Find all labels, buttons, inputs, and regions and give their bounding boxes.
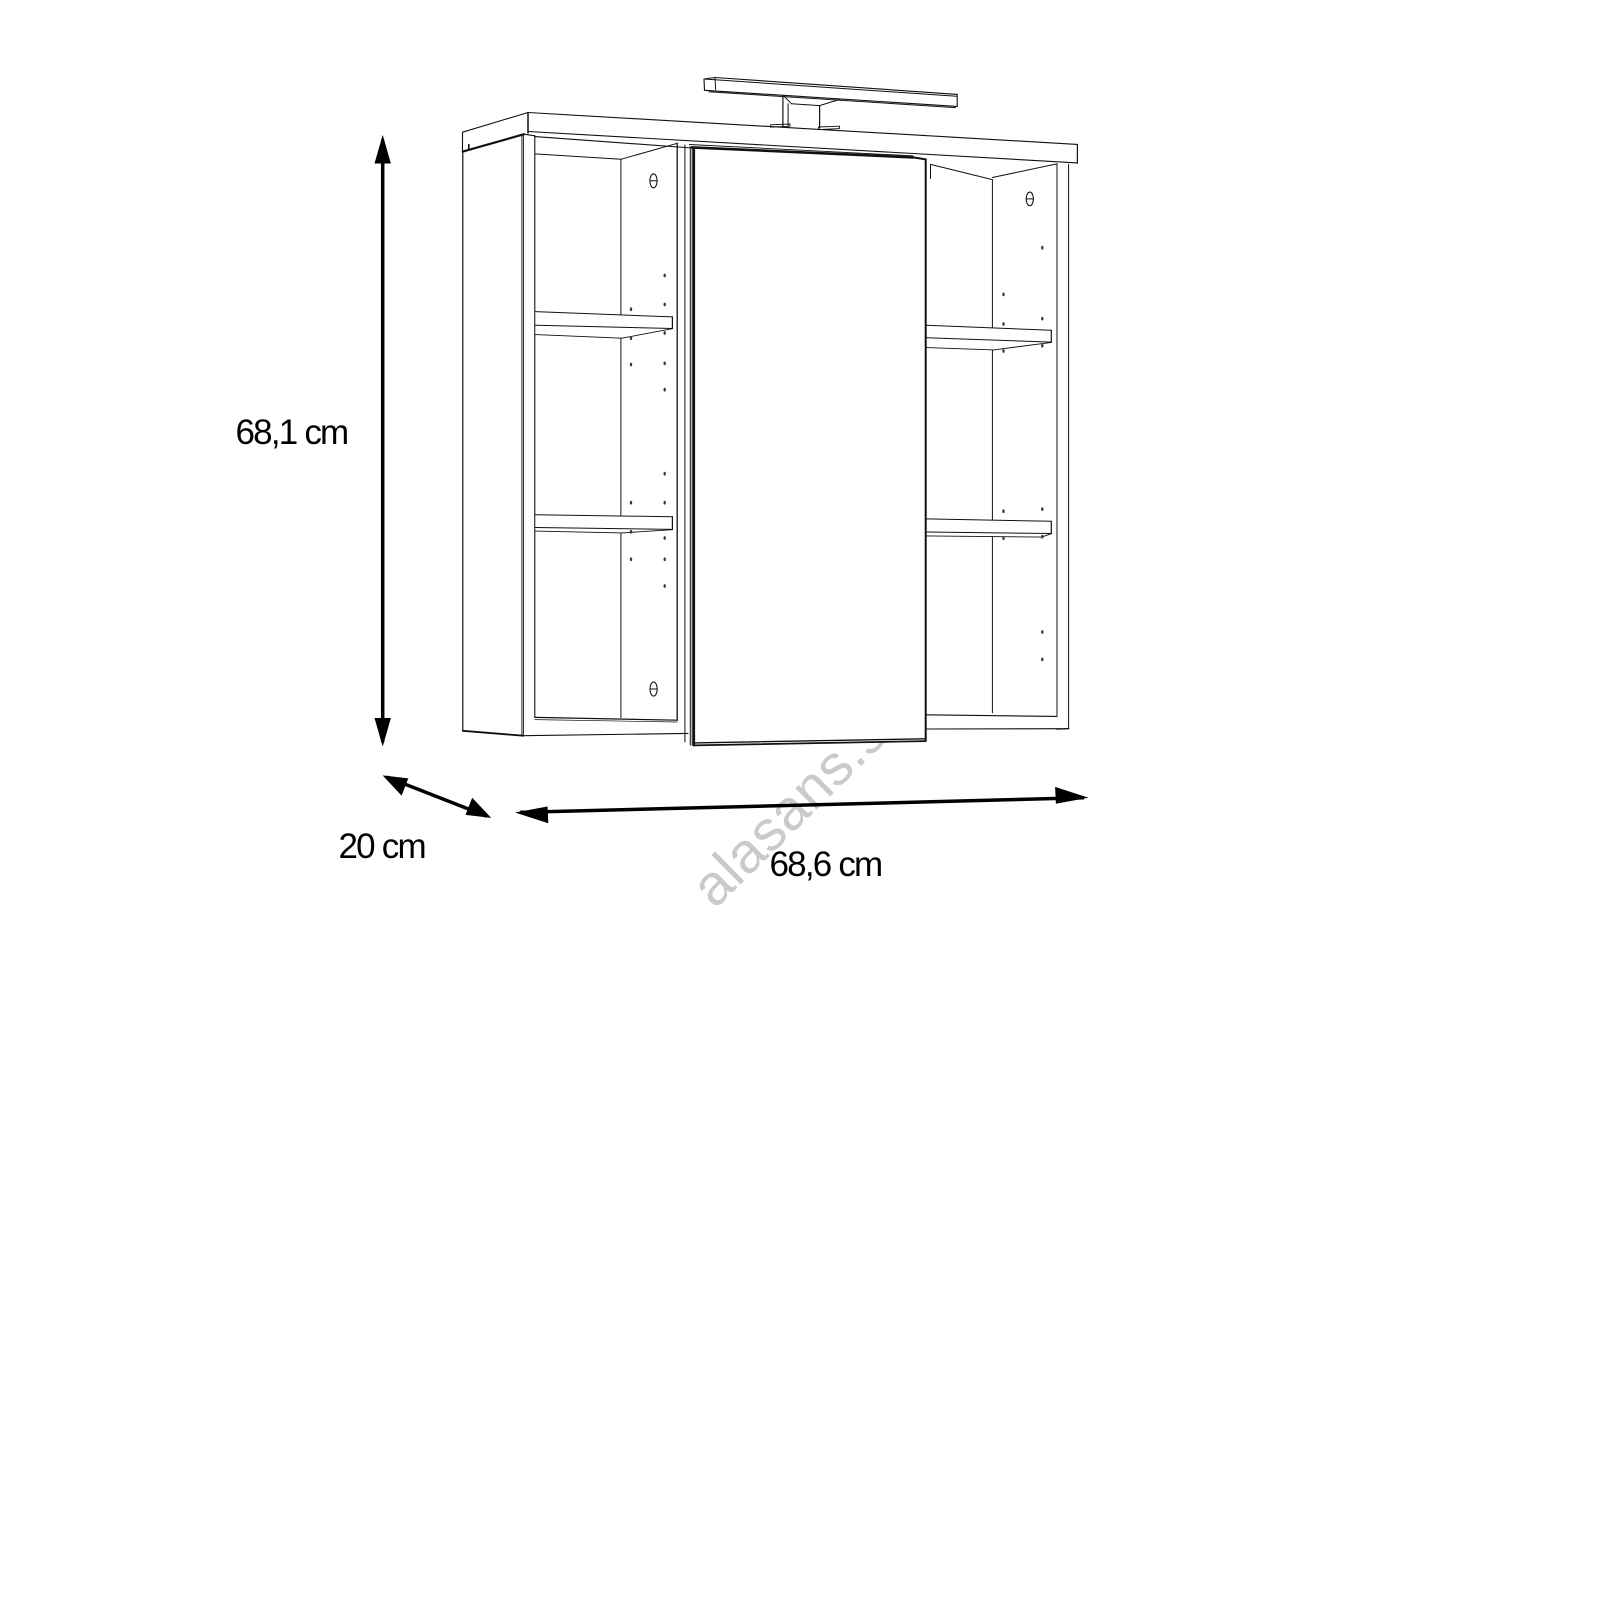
svg-text:68,6 cm: 68,6 cm	[770, 845, 882, 884]
svg-text:20 cm: 20 cm	[339, 827, 425, 866]
svg-text:68,1 cm: 68,1 cm	[236, 413, 348, 452]
